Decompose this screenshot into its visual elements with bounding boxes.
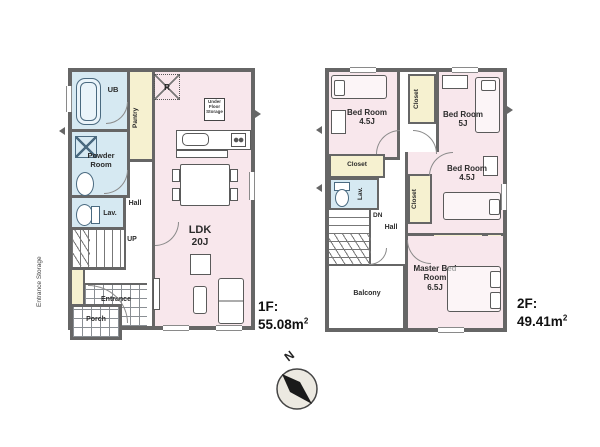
pillow-icon [489,199,500,215]
window-1f-right [249,172,255,200]
door-arc-bed2 [413,130,437,154]
kitchen-sink-icon [182,133,209,146]
window-2f-bottom [438,327,464,333]
closet-mid-label: Closet [411,178,429,220]
bed1-label: Bed Room 4.5J [337,108,397,127]
compass-north-label: N [282,348,297,364]
porch-label: Porch [74,316,118,324]
under-floor-storage-label: Under Floor Storage [204,98,225,121]
window-1f-bottom-left [163,325,189,331]
area-1f-value: 55.08m2 [258,316,308,334]
chair-icon [172,188,180,201]
window-1f-left [66,86,72,112]
entrance-storage-label: Entrance Storage [36,232,50,332]
stairs-2f [329,210,371,266]
floor-plan-canvas: UB Pantry Powder Room Lav. Hall UP Entra… [0,0,600,447]
stairs-winder-1f [72,230,90,266]
vent-icon [316,126,322,134]
side-table [190,254,211,275]
powder-room-label: Powder Room [76,152,126,170]
ldk-name: LDK [172,224,228,237]
desk-icon [442,75,468,89]
dn-label: DN [373,212,393,220]
area-2f: 2F: 49.41m2 [517,295,567,330]
vent-icon [316,184,322,192]
window-2f-top-right [452,67,478,73]
closet-left-label: Closet [329,161,385,169]
up-label: UP [122,236,142,244]
bed-icon [443,192,501,220]
balcony-label: Balcony [329,290,405,298]
dining-table [180,164,230,206]
lav-label-1f: Lav. [96,210,124,218]
window-2f-top-left [350,67,376,73]
bed-icon [331,75,387,99]
stairs-winder-2f [329,234,371,266]
area-1f: 1F: 55.08m2 [258,298,308,333]
compass-icon [274,366,320,412]
stairs-1f [72,230,126,270]
toilet-icon-2f [335,189,349,207]
chair-icon [172,169,180,182]
chair-icon [230,169,238,182]
tv-board [153,278,160,310]
stove-icon [231,133,246,147]
pillow-icon [490,271,501,288]
chair-icon [230,188,238,201]
bed2-label: Bed Room 5J [437,110,489,129]
coffee-table [193,286,207,314]
window-1f-bottom-right [216,325,242,331]
closet-top-label: Closet [413,78,431,120]
pillow-icon [490,292,501,309]
vent-icon [507,106,513,114]
area-1f-title: 1F: [258,298,308,316]
hall-label-2f: Hall [377,224,405,232]
vent-icon [59,127,65,135]
hall-label-1f: Hall [122,200,148,208]
pantry-label: Pantry [132,82,150,154]
area-2f-title: 2F: [517,295,567,313]
pillow-icon [334,80,345,96]
floor-2f-outline: Bed Room 4.5J Closet Bed Room 5J Closet … [325,68,507,332]
kitchen-counter-step [176,150,228,158]
area-2f-value: 49.41m2 [517,313,567,331]
ldk-label: LDK 20J [172,224,228,249]
vent-icon [255,110,261,118]
pillow-icon [481,80,496,91]
floor-1f-outline: UB Pantry Powder Room Lav. Hall UP Entra… [68,68,255,330]
bed-icon [447,266,501,312]
door-arc-balcony [369,248,387,265]
refrigerator-icon: R [154,74,180,100]
powder-sink-icon [76,172,94,196]
sofa-icon [218,278,244,324]
ub-label: UB [98,86,128,95]
lav-label-2f: Lav. [357,181,371,207]
ldk-size: 20J [172,237,228,249]
window-2f-right [501,184,507,210]
